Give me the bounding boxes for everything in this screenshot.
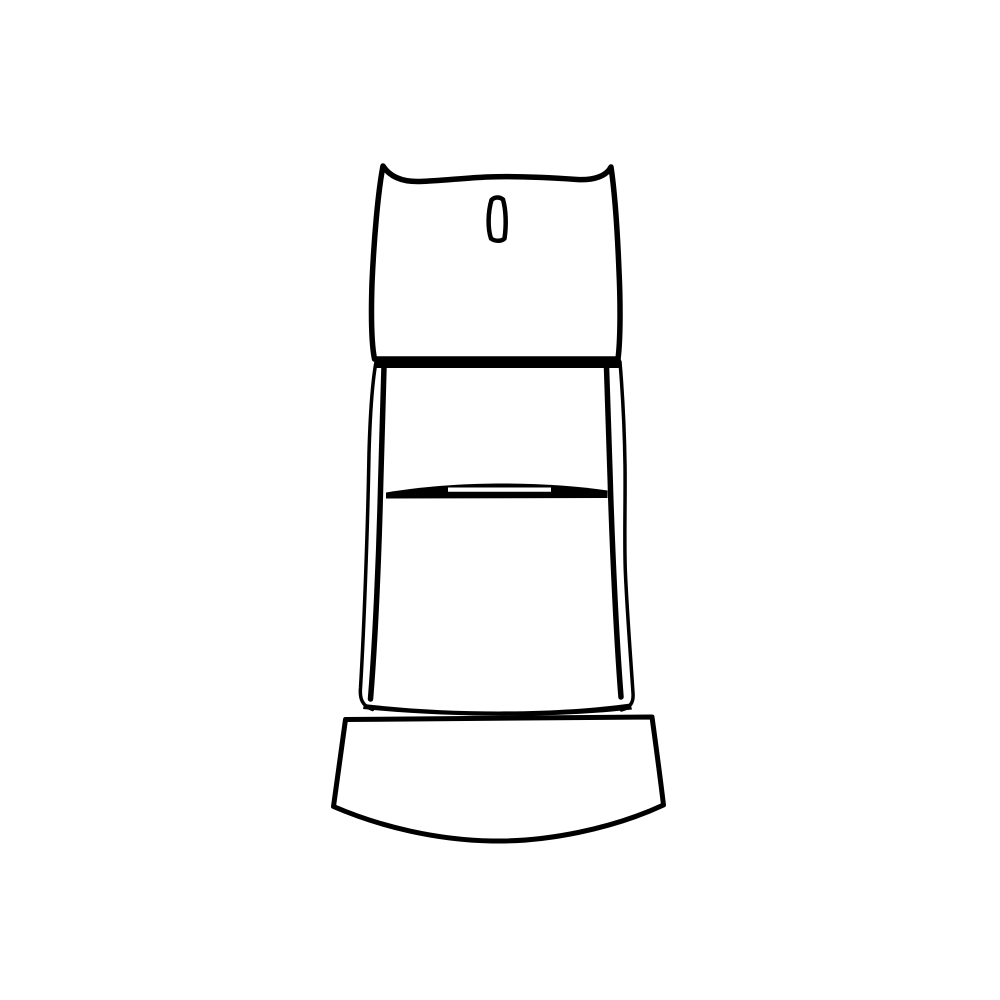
shoulder-bar bbox=[375, 360, 622, 369]
left-inner-rail bbox=[371, 367, 385, 699]
right-inner-rail bbox=[607, 367, 622, 697]
head-outline bbox=[372, 166, 620, 359]
pedestal-object-line-art bbox=[0, 0, 1000, 1000]
head-slot bbox=[489, 197, 506, 240]
drawing-canvas bbox=[0, 0, 1000, 1000]
base-outline bbox=[334, 717, 664, 841]
column-bottom-band bbox=[363, 704, 632, 716]
right-outer-contour bbox=[620, 362, 633, 710]
crossbar-slot-highlight bbox=[448, 488, 551, 492]
